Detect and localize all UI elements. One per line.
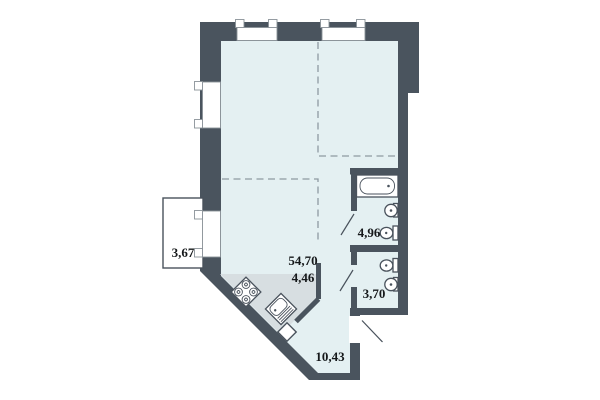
area-label-kitchen: 4,46	[292, 270, 315, 285]
entrance-door-swing-icon	[362, 321, 383, 343]
area-label-balcony: 3,67	[172, 245, 195, 260]
toilet-icon	[380, 226, 398, 240]
floor-plan: 3,67 54,70 4,46 4,96 3,70 10,43	[0, 0, 600, 400]
toilet-icon	[380, 259, 398, 273]
bathtub-icon	[357, 175, 399, 197]
entrance-opening	[349, 316, 361, 343]
window-icon	[195, 82, 221, 129]
sink-icon	[385, 278, 398, 292]
sink-icon	[385, 204, 398, 218]
area-label-toilet: 3,70	[363, 286, 386, 301]
area-label-bathroom: 4,96	[358, 225, 381, 240]
interior-floor	[221, 41, 398, 373]
area-label-hallway: 10,43	[315, 349, 345, 364]
area-label-living-room: 54,70	[288, 253, 317, 268]
